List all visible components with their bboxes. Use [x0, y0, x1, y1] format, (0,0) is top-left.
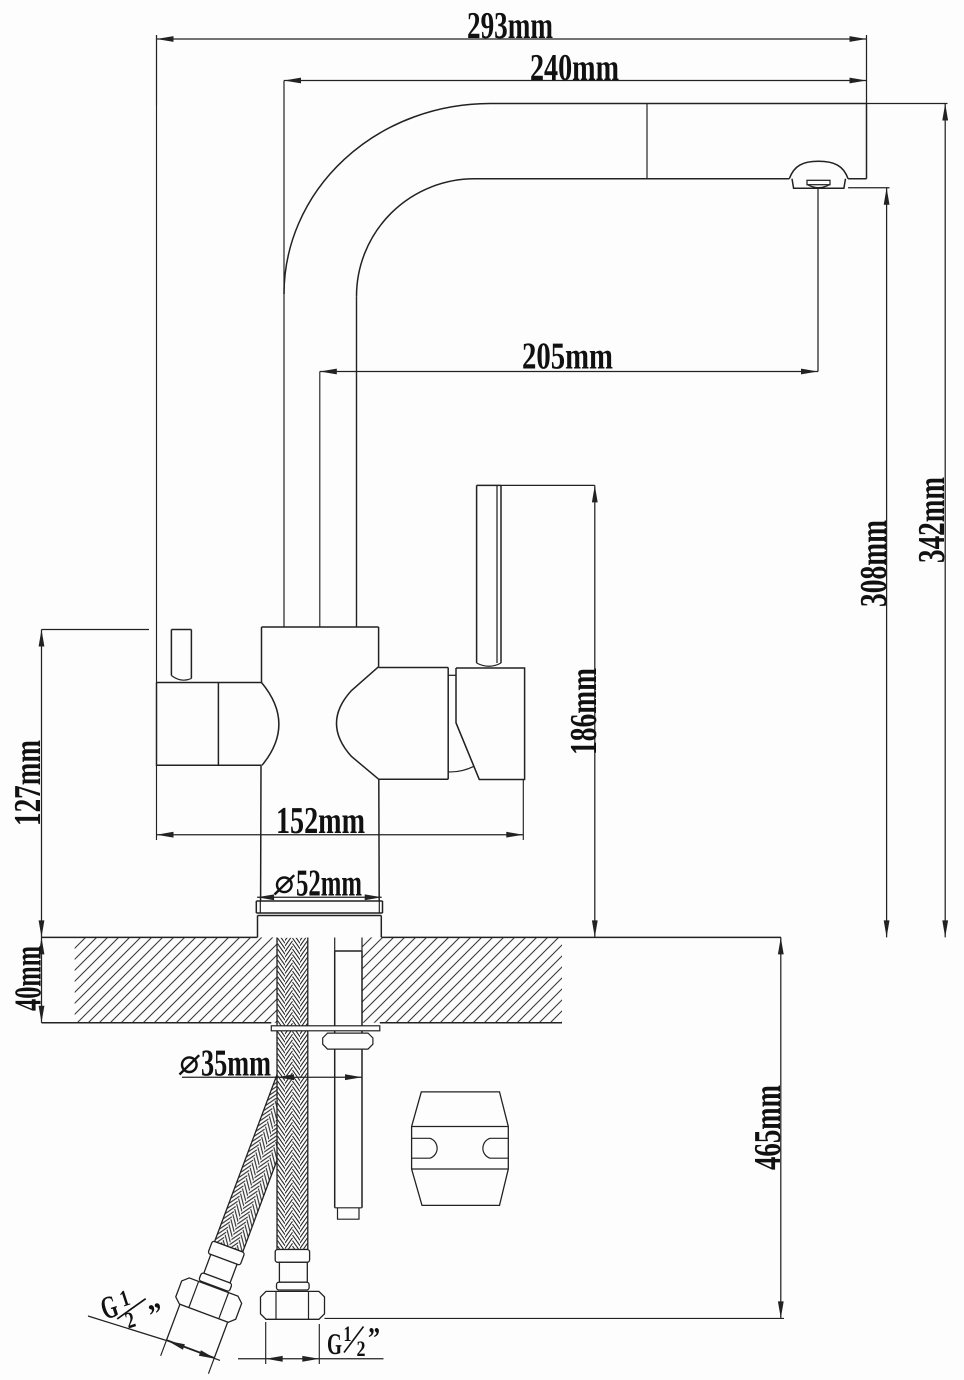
svg-text:205mm: 205mm: [522, 335, 613, 377]
svg-text:2: 2: [357, 1336, 366, 1361]
svg-text:1: 1: [344, 1321, 352, 1346]
svg-text:”: ”: [368, 1322, 380, 1355]
svg-text:35mm: 35mm: [201, 1043, 271, 1085]
svg-text:152mm: 152mm: [276, 800, 365, 842]
svg-text:308mm: 308mm: [853, 520, 895, 607]
svg-text:52mm: 52mm: [296, 863, 362, 905]
svg-text:G: G: [327, 1328, 342, 1361]
svg-text:127mm: 127mm: [7, 740, 49, 826]
svg-text:465mm: 465mm: [747, 1085, 789, 1170]
svg-text:342mm: 342mm: [911, 477, 953, 563]
svg-text:186mm: 186mm: [563, 668, 605, 755]
svg-text:40mm: 40mm: [8, 946, 50, 1011]
svg-text:240mm: 240mm: [530, 47, 619, 89]
svg-text:293mm: 293mm: [467, 5, 553, 47]
